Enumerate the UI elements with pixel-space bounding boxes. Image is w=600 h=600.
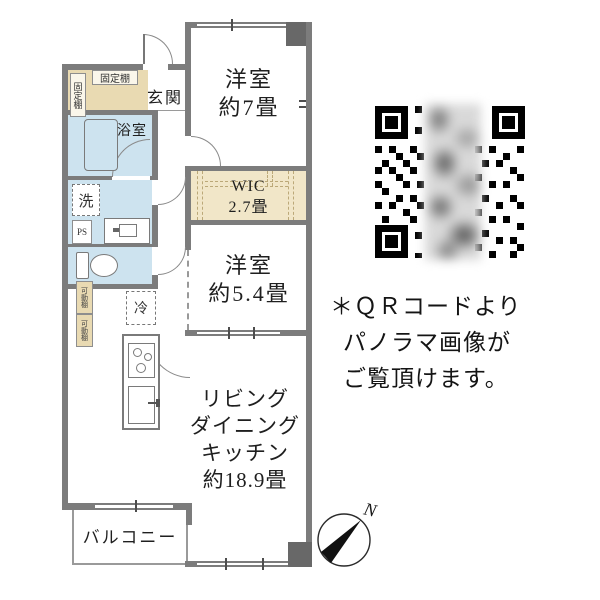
room-size: 2.7畳 bbox=[191, 197, 306, 218]
wall-bedroom7-wic bbox=[185, 166, 312, 171]
movable-shelf-upper: 可動棚 bbox=[76, 281, 93, 314]
wall-bedroom54-ldk-stub-r bbox=[280, 330, 312, 336]
entrance-step-line bbox=[158, 110, 185, 111]
balcony-rail-right bbox=[186, 525, 188, 565]
room-name: ダイニング bbox=[178, 413, 312, 440]
room-name: 浴室 bbox=[117, 124, 147, 139]
wall-corridor-rooms-a bbox=[185, 22, 191, 136]
toilet-tank-icon bbox=[76, 252, 89, 279]
fridge-box: 冷 bbox=[126, 291, 156, 325]
qr-note-line1: ＊ＱＲコードより bbox=[330, 289, 592, 325]
wall-washroom-toilet bbox=[68, 244, 158, 247]
stove-burner bbox=[133, 348, 142, 357]
stove-icon bbox=[128, 343, 155, 378]
room-size: 約5.4畳 bbox=[188, 280, 310, 308]
compass: N bbox=[312, 497, 394, 579]
stove-burner bbox=[136, 363, 146, 373]
fixed-shelf-left-box: 固定棚 bbox=[70, 73, 86, 117]
window-tick bbox=[262, 558, 264, 570]
room-name: リビング bbox=[178, 386, 312, 413]
sink-icon bbox=[128, 386, 155, 424]
wall-watercol-right-c bbox=[152, 275, 158, 289]
qr-code bbox=[375, 106, 525, 258]
room-label-bathroom: 浴室 bbox=[112, 120, 152, 140]
balcony-rail-left bbox=[72, 510, 74, 565]
fixed-shelf-left-label: 固定棚 bbox=[72, 82, 85, 109]
wall-balcony-right-stub bbox=[186, 503, 192, 525]
room-size: 約7畳 bbox=[192, 94, 306, 122]
window-tick bbox=[228, 327, 230, 339]
vanity-basin bbox=[119, 224, 137, 237]
room-name: キッチン bbox=[178, 440, 312, 467]
compass-needle bbox=[321, 520, 361, 563]
floor-plan: 洗 PS 冷 可動棚 可動棚 固定棚 固定棚 bbox=[0, 0, 340, 600]
entrance-door-arc bbox=[143, 34, 173, 64]
vanity-tap bbox=[113, 228, 119, 232]
room-name: 洋室 bbox=[188, 252, 310, 280]
window-tick bbox=[253, 327, 255, 339]
floor-plan-page: 洗 PS 冷 可動棚 可動棚 固定棚 固定棚 bbox=[0, 0, 600, 600]
room-label-western54: 洋室 約5.4畳 bbox=[188, 252, 310, 308]
sink-tap-knob bbox=[156, 399, 160, 407]
vanity-icon bbox=[104, 218, 150, 244]
toilet-bowl-icon bbox=[90, 254, 118, 277]
room-name: 洋室 bbox=[192, 66, 306, 94]
wall-wic-bedroom54 bbox=[185, 220, 312, 225]
entrance-door-leaf bbox=[143, 34, 145, 64]
movable-shelf-lower-label: 可動棚 bbox=[80, 320, 90, 341]
pipe-space-box: PS bbox=[72, 220, 92, 244]
window-tick bbox=[135, 500, 137, 512]
room-label-wic: WIC 2.7畳 bbox=[191, 176, 306, 218]
toilet-door-arc bbox=[158, 247, 186, 275]
washer-box: 洗 bbox=[72, 184, 100, 216]
window-bedroom7-top bbox=[197, 22, 286, 28]
room-name: バルコニー bbox=[83, 528, 178, 547]
pillar-bottom-right bbox=[288, 542, 312, 567]
qr-note-line3: ご覧頂けます。 bbox=[330, 361, 592, 397]
qr-note: ＊ＱＲコードより パノラマ画像が ご覧頂けます。 bbox=[330, 289, 592, 397]
room-label-entrance: 玄関 bbox=[141, 84, 189, 108]
wall-bathroom-washroom-a bbox=[68, 176, 112, 180]
qr-blurred-region bbox=[425, 104, 481, 260]
window-ldk-bottom bbox=[197, 561, 288, 567]
wall-watercol-right-a bbox=[152, 110, 158, 177]
movable-shelf-upper-label: 可動棚 bbox=[80, 287, 90, 308]
room-label-balcony: バルコニー bbox=[76, 523, 184, 548]
window-ldk-balcony bbox=[95, 503, 173, 510]
washer-label: 洗 bbox=[78, 190, 93, 211]
window-tick bbox=[225, 558, 227, 570]
movable-shelf-lower: 可動棚 bbox=[76, 314, 93, 347]
kitchen-counter bbox=[122, 334, 160, 430]
wall-watercol-right-b bbox=[152, 205, 158, 247]
qr-note-line2: パノラマ画像が bbox=[330, 325, 592, 361]
wall-bottom-stub-l bbox=[185, 561, 197, 567]
compass-north-label: N bbox=[361, 498, 379, 521]
bedroom7-door-arc bbox=[191, 136, 221, 166]
fixed-shelf-top-box: 固定棚 bbox=[92, 70, 138, 85]
room-label-western7: 洋室 約7畳 bbox=[192, 66, 306, 122]
balcony-rail-bottom bbox=[72, 563, 188, 565]
window-tick bbox=[231, 19, 233, 31]
room-label-ldk: リビング ダイニング キッチン 約18.9畳 bbox=[178, 386, 312, 494]
wall-ldk-balcony-stub bbox=[62, 503, 95, 510]
fixed-shelf-top-label: 固定棚 bbox=[100, 70, 130, 85]
pipe-space-label: PS bbox=[77, 227, 87, 237]
room-name: WIC bbox=[191, 176, 306, 197]
room-name: 玄関 bbox=[147, 90, 183, 107]
washroom-door-arc bbox=[158, 177, 186, 205]
fridge-label: 冷 bbox=[134, 298, 148, 318]
room-size: 約18.9畳 bbox=[178, 467, 312, 494]
stove-burner bbox=[144, 353, 152, 361]
window-bedroom54-ldk bbox=[197, 330, 280, 336]
